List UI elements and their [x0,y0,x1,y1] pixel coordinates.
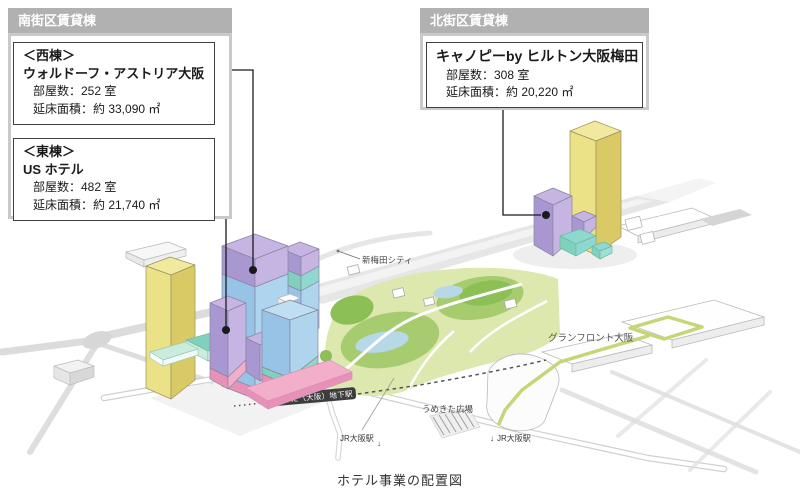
plaza-label: うめきた広場 [422,404,474,414]
south-yellow-tower [146,257,195,399]
east-wing-tag: ＜東棟＞ [23,143,206,161]
canopy-hilton-area: 延床面積：約 20,220 ㎡ [436,84,634,101]
west-wing-box: ＜西棟＞ ウォルドーフ・アストリア大阪 部屋数：252 室 延床面積：約 33,… [13,42,215,125]
west-wing-rooms: 部屋数：252 室 [23,83,206,100]
shin-umeda-leader [338,251,360,259]
east-wing-name: US ホテル [23,161,206,179]
jr-west-arrow: ↓ [377,439,381,448]
road-se-2 [612,372,800,452]
canopy-hilton-box: キャノピーby ヒルトン大阪梅田 部屋数：308 室 延床面積：約 20,220… [426,42,643,108]
east-wing-area: 延床面積：約 21,740 ㎡ [23,197,206,214]
jr-west-label: JR大阪駅 [340,433,374,443]
hotel-layout-diagram: うめきた（大阪）地下駅 [0,0,800,499]
dot-west-tower [249,266,257,274]
road-west-2 [2,340,96,352]
road-west-3 [30,342,98,452]
east-wing-box: ＜東棟＞ US ホテル 部屋数：482 室 延床面積：約 21,740 ㎡ [13,138,215,221]
east-wing-rooms: 部屋数：482 室 [23,179,206,196]
jr-east-label: JR大阪駅 [497,433,531,443]
grand-front-label: グランフロント大阪 [548,332,634,344]
west-wing-name: ウォルドーフ・アストリア大阪 [23,65,206,83]
dot-east-tower [222,326,230,334]
shin-umeda-leader-dot [337,250,340,253]
north-block-header: 北街区賃貸棟 [420,8,649,33]
round-building [487,354,559,431]
north-block-buildings [534,121,655,259]
south-block-header: 南街区賃貸棟 [8,8,232,33]
jr-east-arrow: ↓ [490,434,494,443]
us-hotel-tower-east [210,296,246,389]
dot-north-tower [542,211,550,219]
west-wing-tag: ＜西棟＞ [23,47,206,65]
gray-box-far-west [54,360,94,385]
north-gray-box [700,209,752,226]
canopy-hilton-rooms: 部屋数：308 室 [436,67,634,84]
figure-caption: ホテル事業の配置図 [0,470,800,489]
west-wing-area: 延床面積：約 33,090 ㎡ [23,101,206,118]
shin-umeda-label: 新梅田シティ [362,255,413,265]
canopy-hilton-name: キャノピーby ヒルトン大阪梅田 [436,47,634,67]
road-se-3 [618,360,706,436]
